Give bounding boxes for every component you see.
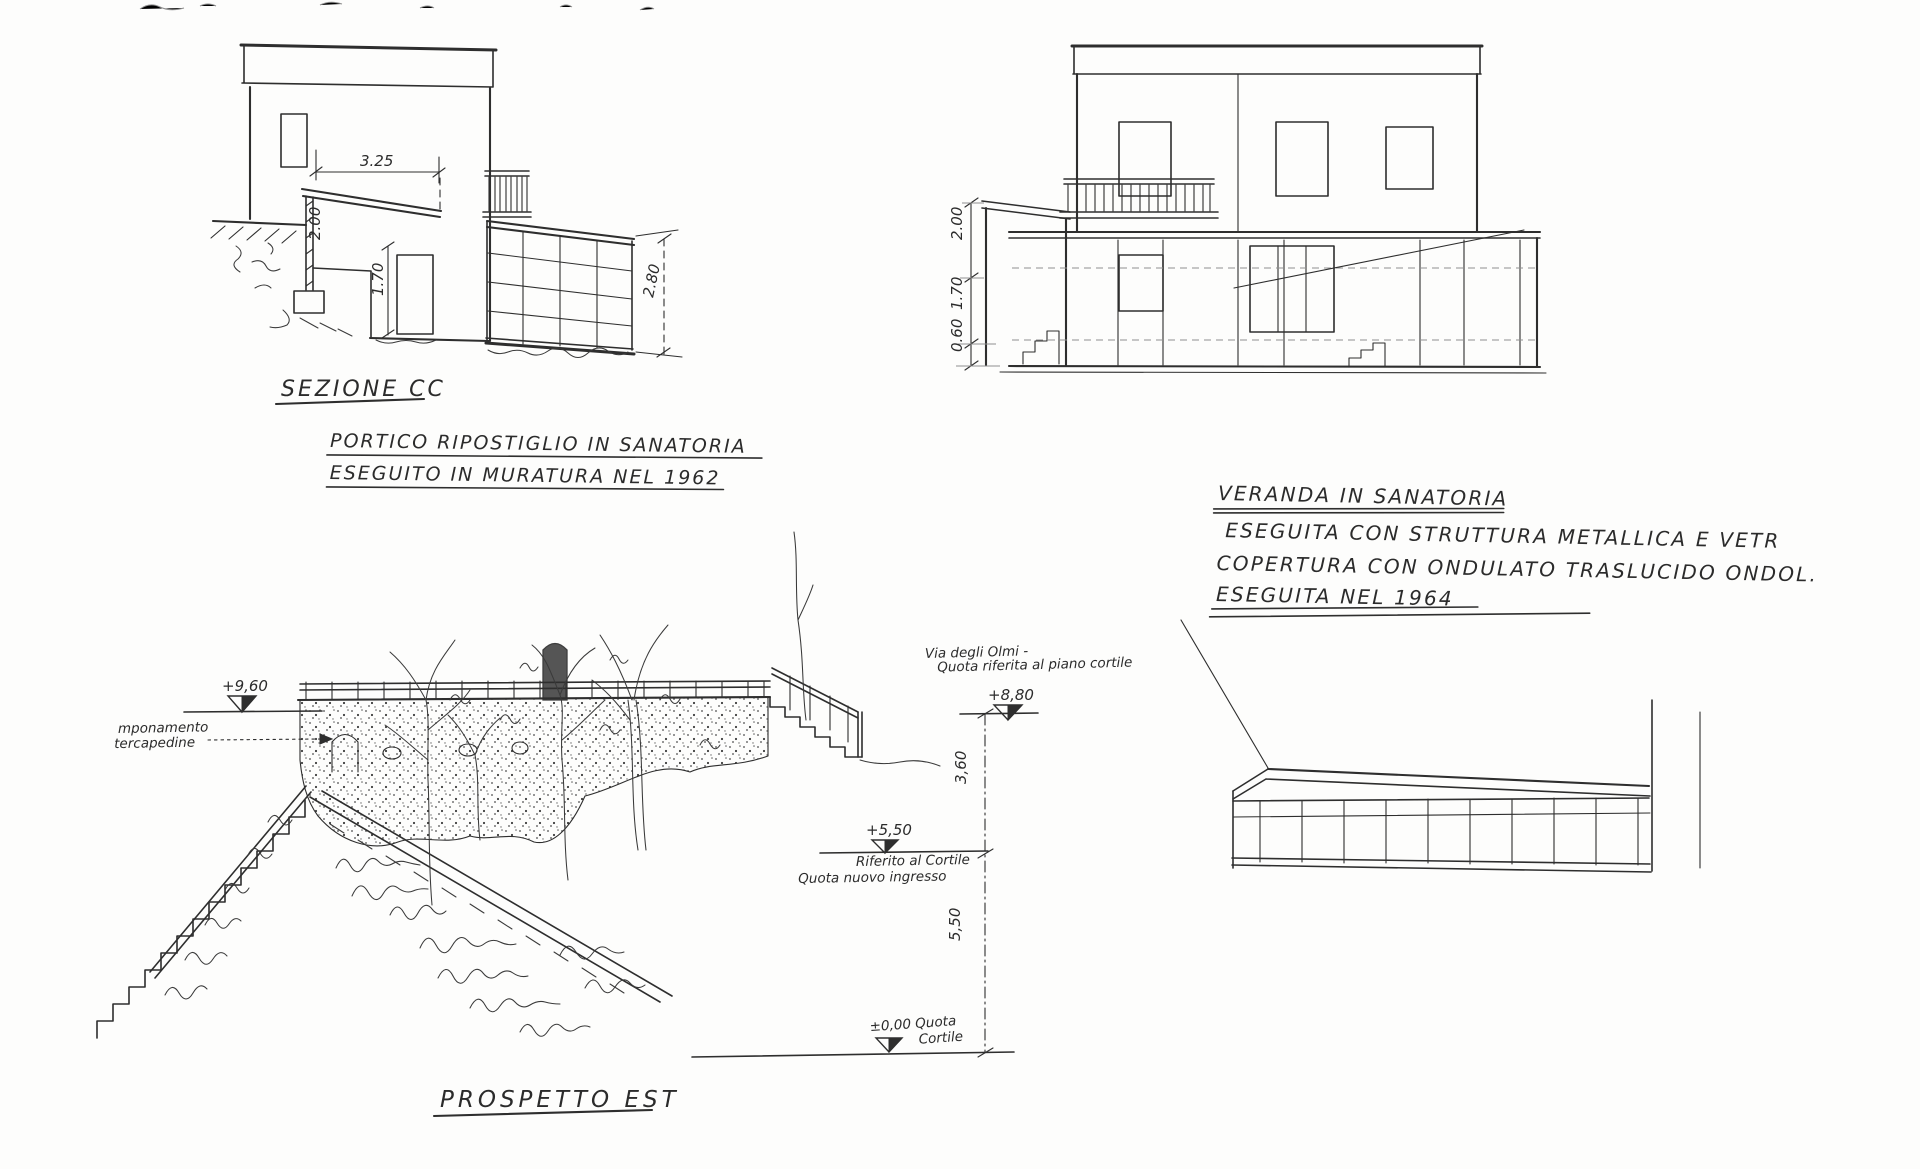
dim-glass-height: 2.80 [639, 262, 664, 298]
level-marker-street: +8,80 [988, 686, 1034, 704]
level-marker-zero-line2: Cortile [918, 1029, 963, 1048]
entrance-label-line2: Quota nuovo ingresso [798, 868, 947, 887]
dim-elevation-lower: 0.60 [948, 319, 966, 352]
prospetto-est-drawing [97, 532, 940, 1038]
scan-artifacts [140, 2, 654, 10]
level-marker-top: +9,60 [222, 677, 268, 695]
veranda-note-line4: ESEGUITA NEL 1964 [1216, 582, 1454, 611]
wall-label-line2: tercapedine [114, 735, 195, 752]
scanned-architectural-sheet: 3.25 2.00 1.70 2.8 [0, 0, 1920, 1169]
veranda-note-line3: COPERTURA CON ONDULATO TRASLUCIDO ONDOL. [1216, 551, 1818, 587]
entrance-label-line1: Riferito al Cortile [856, 852, 970, 870]
dim-garden-upper: 3,60 [952, 751, 970, 784]
dim-portico-width: 3.25 [360, 152, 393, 170]
dim-post-height: 2.00 [306, 207, 324, 240]
prospetto-est-title-group: PROSPETTO EST [434, 1087, 680, 1116]
prospetto-title: PROSPETTO EST [440, 1087, 680, 1113]
level-marker-entrance: +5,50 [866, 821, 912, 839]
section-caption-line1: PORTICO RIPOSTIGLIO IN SANATORIA [330, 430, 747, 458]
sezione-cc-drawing: 3.25 2.00 1.70 2.8 [211, 45, 682, 358]
dim-door-height: 1.70 [369, 263, 387, 296]
veranda-note: VERANDA IN SANATORIA ESEGUITA CON STRUTT… [1210, 481, 1820, 629]
veranda-note-line1: VERANDA IN SANATORIA [1218, 481, 1509, 511]
veranda-elevation-drawing [1181, 620, 1700, 872]
sezione-cc-captions: SEZIONE CC PORTICO RIPOSTIGLIO IN SANATO… [276, 377, 762, 493]
veranda-note-line2: ESEGUITA CON STRUTTURA METALLICA E VETR [1225, 518, 1781, 553]
section-caption-line2: ESEGUITO IN MURATURA NEL 1962 [329, 462, 720, 489]
dim-garden-lower: 5,50 [946, 908, 964, 941]
dim-elevation-upper: 2.00 [948, 207, 966, 240]
architectural-drawing: 3.25 2.00 1.70 2.8 [0, 0, 1920, 1169]
front-elevation-drawing: 2.00 1.70 0.60 [948, 46, 1546, 373]
dim-elevation-middle: 1.70 [948, 277, 966, 310]
